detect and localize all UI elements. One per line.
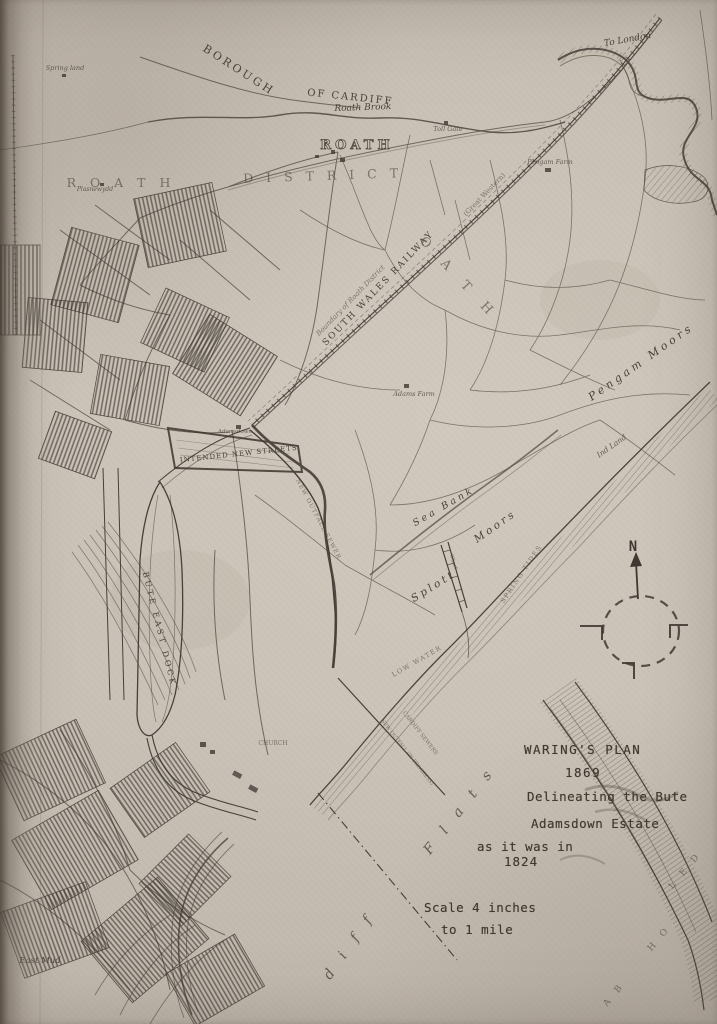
sea-bank-label: Sea Bank [411, 485, 477, 529]
plan-title: WARING'S PLAN [524, 742, 641, 757]
boundary-of-roath-label: Boundary of Roath District [314, 263, 387, 338]
moors-label: Moors [471, 508, 519, 546]
intended-new-streets-label: INTENDED NEW STREETS [179, 444, 298, 464]
compass-needle [636, 562, 638, 599]
scale-line-2: to 1 mile [441, 922, 513, 937]
roath-brook [148, 113, 565, 133]
ind-land-label: Ind Land [594, 432, 628, 460]
great-western-label: (Great Western) [462, 171, 507, 218]
pengam-farm-label: Pengam Farm [526, 158, 573, 166]
compass-north-label: N [629, 539, 637, 555]
shore-letters-ho: H O [646, 924, 673, 953]
east-mud-label: East Mud [18, 956, 61, 966]
church-label: CHURCH [258, 740, 287, 747]
compass-circle [603, 596, 679, 666]
scanned-map-page: N To LondonBOROUGHOF CARDIFFRoath BrookR… [0, 0, 717, 1024]
shore-letters-ab: A B [601, 981, 627, 1010]
dash-dot-boundary [318, 793, 457, 960]
plan-subtitle-3: as it was in [477, 839, 573, 854]
adams-farm-label: Adams Farm [392, 390, 435, 398]
plan-subtitle-1: Delineating the Bute [527, 789, 688, 804]
spring-land-label: Spring land [46, 64, 85, 72]
plasnewydd-label: Plasnewydd [76, 186, 113, 193]
foreshore-hatch-band [319, 393, 713, 812]
roath-village-label: ROATH [320, 138, 393, 153]
adamsdown-label: Adamsdown [217, 429, 252, 435]
borough-label: BOROUGH [200, 42, 277, 98]
new-outfall-sewer-label: NEW OUTFALL SEWER [294, 478, 342, 561]
toll-gate-label: Toll Gate [433, 125, 463, 133]
diff-spread-label: d i f f [320, 909, 379, 983]
roath-brook-label: Roath Brook [333, 102, 391, 114]
compass-rose: N [580, 539, 688, 679]
scale-line-1: Scale 4 inches [424, 900, 536, 915]
plan-year: 1869 [565, 765, 601, 780]
coast-outer-line [328, 405, 717, 820]
to-london-label: To London [603, 31, 652, 49]
map-drawing: N To LondonBOROUGHOF CARDIFFRoath BrookR… [0, 0, 717, 1024]
plan-subtitle-2: Adamsdown Estate [531, 816, 659, 831]
district-spread-label: D I S T R I C T [243, 165, 403, 186]
plan-base-year: 1824 [504, 854, 538, 869]
oath-spread-label: O A T H [416, 234, 501, 324]
wetland-patch [644, 166, 708, 204]
splott-label: Splott [409, 568, 458, 605]
compass-west-tick [580, 626, 602, 640]
new-outfall-sewer-line [250, 430, 336, 668]
